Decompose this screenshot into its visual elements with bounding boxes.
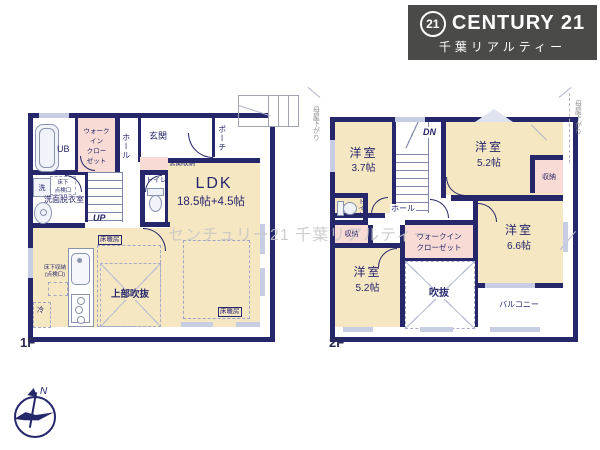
hall-label-2f: ホール (390, 204, 416, 214)
wic-label-line1: ウォーク (84, 125, 110, 135)
entrance-steps (238, 95, 299, 127)
window (485, 283, 535, 288)
toilet-bowl-icon-2f (343, 202, 357, 215)
room-c-name: 洋室 (335, 265, 400, 279)
wic-label-line3: クロー (87, 145, 107, 155)
open-ceiling-text: 上部吹抜 (110, 289, 150, 300)
toilet-label-2f: トイレ (356, 198, 364, 218)
kitchen-sink-icon (71, 253, 90, 285)
entrance-label: 玄関 (149, 131, 167, 142)
room-b-name: 洋室 (443, 140, 535, 154)
ldk-label: LDK (168, 174, 260, 193)
window (260, 268, 265, 296)
basin-drain (40, 209, 47, 216)
century21-logo: 21 CENTURY 21 千葉リアルティー (408, 5, 597, 60)
window (181, 322, 213, 327)
steps-diagonal (238, 105, 271, 116)
balcony-label: バルコニー (475, 300, 563, 310)
compass-north-label: N (40, 386, 47, 398)
door-arc (430, 199, 449, 218)
room-c-size: 5.2帖 (335, 283, 400, 295)
entrance-storage-strip (140, 157, 168, 170)
room-b-size: 5.2帖 (443, 158, 535, 170)
floorplan-canvas: 21 CENTURY 21 千葉リアルティー ウォーク イン クロー ゼット (0, 0, 600, 450)
floor-heating-a-label: 床暖房 (98, 235, 122, 245)
century21-badge-icon: 21 (420, 11, 446, 37)
moya-tick (308, 87, 321, 98)
washroom-label: 洗面脱衣室 (44, 195, 84, 205)
void-label: 吹抜 (405, 288, 473, 300)
moya-dashed-line (569, 93, 570, 163)
window (343, 327, 373, 332)
entrance-storage-label: 玄関収納 (169, 160, 195, 168)
wall (138, 118, 141, 162)
wall (451, 195, 563, 201)
basin-icon (34, 202, 52, 224)
burner-icon (77, 297, 85, 305)
logo-subtitle: 千葉リアルティー (439, 38, 566, 55)
watermark-text: センチュリー21 千葉リアルティー (168, 221, 430, 245)
storage-a-label: 収納 (542, 172, 556, 182)
wall (140, 172, 145, 225)
door-arc (188, 133, 213, 158)
porch-label: ポーチ (217, 125, 227, 152)
steps-treads (268, 96, 298, 126)
room-a-size: 3.7帖 (335, 163, 392, 175)
window (490, 327, 540, 332)
floor1-label: 1F (20, 335, 35, 350)
moya-sagari-left-label: 母屋下がり (311, 106, 319, 141)
underfloor-storage-label: 床下収納 (点検口) (37, 265, 73, 279)
void-text: 吹抜 (427, 288, 451, 299)
up-label: UP (93, 213, 106, 224)
bay-window-icon (475, 109, 513, 122)
moya-sagari-right-label: 母屋下がり (573, 100, 581, 135)
burner-icon (75, 306, 83, 314)
logo-brand-text: CENTURY 21 (452, 12, 585, 35)
underfloor-storage-box (48, 282, 68, 296)
window (395, 117, 425, 122)
ldk-size-label: 18.5帖+4.5帖 (156, 196, 266, 210)
hall-label-1f: ホール (121, 133, 131, 160)
floor2-label: 2F (329, 335, 344, 350)
toilet-label-1f: トイレ (146, 177, 167, 185)
room-a-name: 洋室 (335, 146, 392, 160)
window (563, 222, 568, 252)
dn-label: DN (422, 127, 437, 138)
storage-a: 収納 (535, 160, 563, 193)
window (28, 248, 33, 278)
floor-heating-b-label: 床暖房 (218, 307, 242, 317)
wall (115, 118, 120, 175)
room-d-size: 6.6帖 (475, 241, 563, 253)
compass-arrowhead-icon (27, 387, 38, 397)
window (236, 322, 260, 327)
stove-icon (71, 294, 90, 323)
window (39, 113, 69, 118)
door-arc (65, 175, 82, 192)
washer-label: 洗 (39, 183, 46, 193)
bathtub-inner (39, 128, 55, 168)
compass: N (12, 386, 64, 442)
wall (165, 163, 168, 225)
ufs-line2: (点検口) (37, 272, 73, 279)
wic-label-line2: イン (90, 135, 103, 145)
open-ceiling-label: 上部吹抜 (91, 289, 169, 300)
room-d-name: 洋室 (475, 223, 563, 237)
window (420, 327, 453, 332)
bathtub-icon (35, 124, 59, 172)
ub-label: UB (57, 144, 70, 155)
burner-icon (77, 316, 85, 324)
faucet-icon (77, 258, 82, 263)
logo-row: 21 CENTURY 21 (420, 11, 585, 37)
fridge-label: 冷 (37, 307, 44, 315)
